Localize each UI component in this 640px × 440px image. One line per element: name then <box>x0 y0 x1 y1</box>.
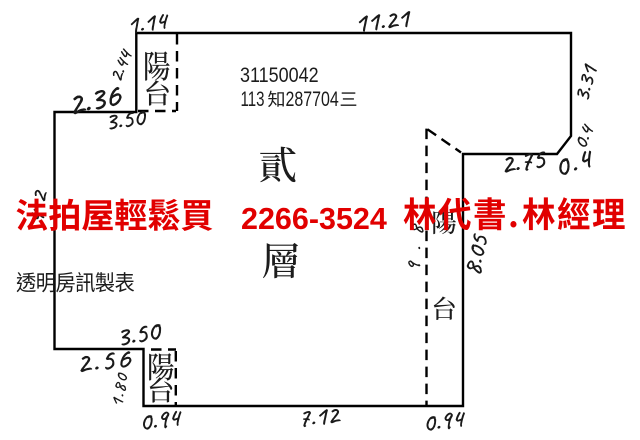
svg-text:287704: 287704 <box>286 88 339 112</box>
svg-text:31150042: 31150042 <box>240 64 319 88</box>
svg-text:113: 113 <box>241 86 265 110</box>
svg-text:2266-3524: 2266-3524 <box>241 202 387 236</box>
